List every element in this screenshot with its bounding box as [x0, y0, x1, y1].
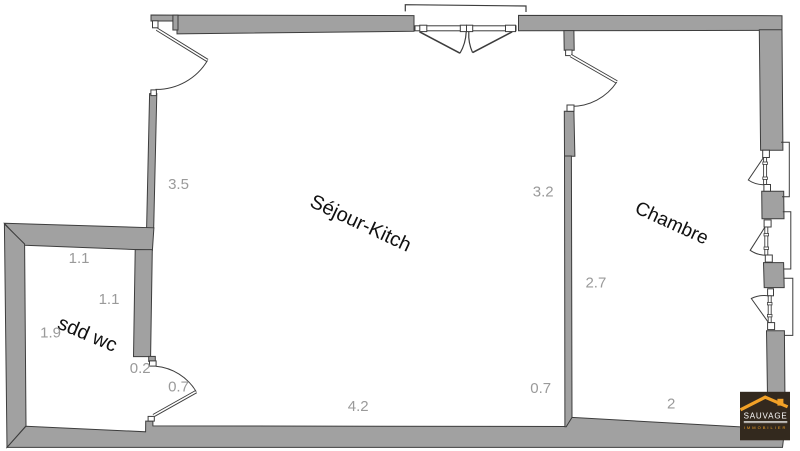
svg-text:SAUVAGE: SAUVAGE [744, 412, 788, 421]
svg-text:0.7: 0.7 [530, 380, 551, 397]
svg-text:0.2: 0.2 [130, 360, 151, 377]
svg-text:3.5: 3.5 [168, 176, 189, 193]
svg-text:1.1: 1.1 [69, 250, 90, 267]
svg-text:4.2: 4.2 [348, 398, 369, 415]
svg-text:IMMOBILIER: IMMOBILIER [744, 425, 788, 430]
svg-text:3.2: 3.2 [533, 183, 554, 200]
svg-text:2.7: 2.7 [585, 275, 606, 292]
svg-text:2: 2 [667, 395, 675, 412]
svg-text:1.1: 1.1 [99, 291, 120, 308]
svg-text:1.9: 1.9 [40, 324, 61, 341]
svg-text:0.7: 0.7 [168, 379, 189, 396]
